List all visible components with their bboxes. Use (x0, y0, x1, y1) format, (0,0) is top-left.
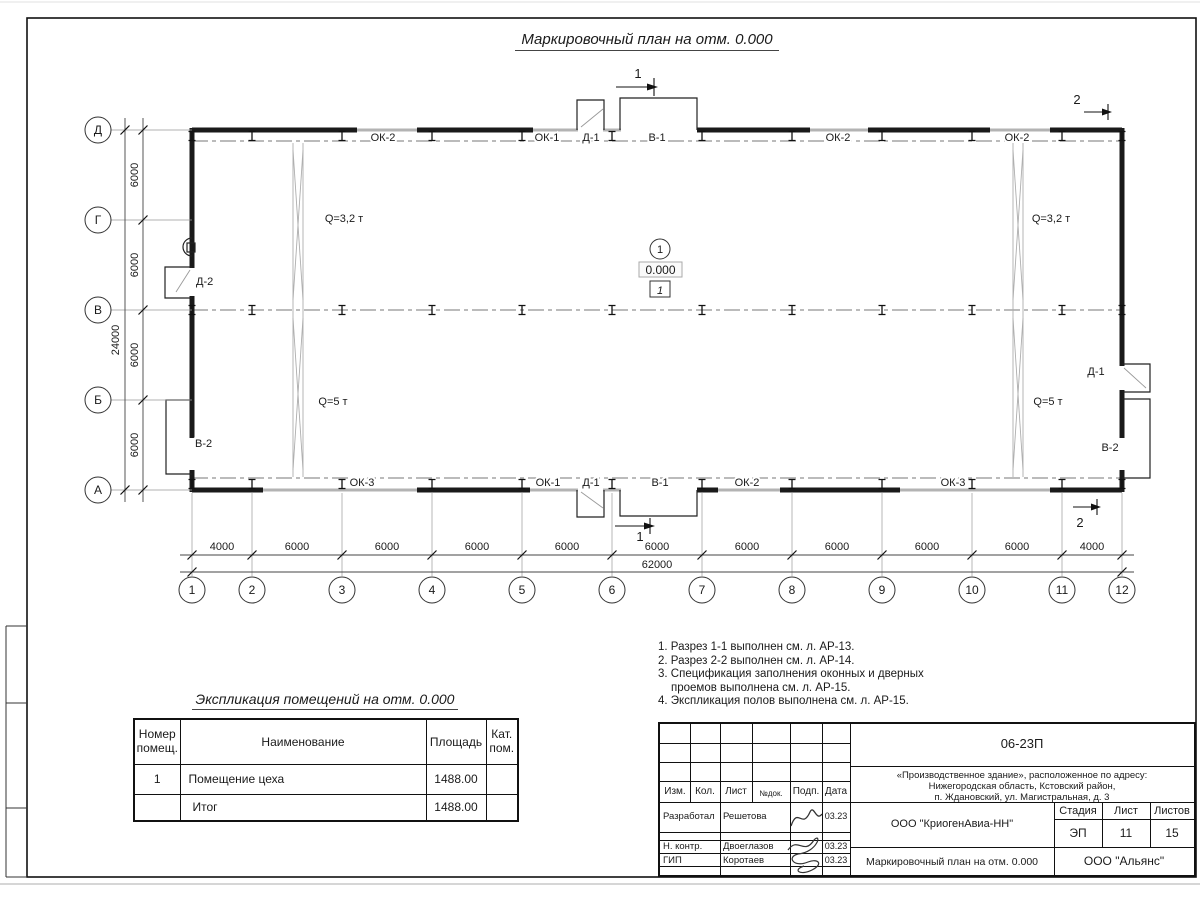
door-mark-label: Д-1 (1087, 366, 1104, 378)
dim-label: 6000 (1005, 541, 1029, 553)
explication-title-text: Экспликация помещений на отм. 0.000 (192, 691, 459, 710)
dim-label: 6000 (645, 541, 669, 553)
explication-header-row: Номер помещ. Наименование Площадь Кат. п… (134, 719, 518, 764)
axis-bubble-label: 5 (519, 583, 526, 597)
explication-table: Номер помещ. Наименование Площадь Кат. п… (133, 718, 519, 822)
table-row: Итог 1488.00 (134, 794, 518, 821)
axis-bubble-label: 6 (609, 583, 616, 597)
dim-label: 6000 (129, 163, 141, 187)
note-line: 3. Спецификация заполнения оконных и две… (658, 668, 978, 682)
tb-address-line1: «Производственное здание», расположенное… (850, 770, 1194, 781)
cell-total-area: 1488.00 (426, 794, 486, 821)
note-line: 2. Разрез 2-2 выполнен см. л. АР-14. (658, 655, 978, 669)
tb-name-gip: Коротаев (723, 855, 764, 866)
cell-total-label: Итог (180, 794, 426, 821)
axis-bubble-label: А (94, 483, 102, 497)
axis-bubble-label: 12 (1115, 583, 1129, 597)
window-mark-label: ОК-1 (536, 477, 561, 489)
window-mark-label: ОК-2 (826, 132, 851, 144)
tb-name-control: Двоеглазов (723, 841, 774, 852)
title-block: Изм. Кол. Лист №док. Подп. Дата Разработ… (658, 722, 1196, 877)
axis-bubble-label: В (94, 303, 102, 317)
window-mark-label: ОК-1 (535, 132, 560, 144)
dim-total-label: 24000 (110, 325, 122, 356)
door-leaf-lines (176, 109, 1146, 508)
signature-developer (788, 804, 824, 832)
col-header-name: Наименование (180, 719, 426, 764)
axis-bubble-label: 2 (249, 583, 256, 597)
tb-sheets-value: 15 (1150, 828, 1194, 839)
axis-bubble-label: 4 (429, 583, 436, 597)
col-header-area: Площадь (426, 719, 486, 764)
dim-label: 6000 (915, 541, 939, 553)
door-mark-label: Д-2 (196, 276, 213, 288)
level-mark: 1 0.000 1 (639, 239, 682, 297)
row-axis-bubbles: Д Г В Б А (85, 117, 111, 503)
axis-bubble-label: 8 (789, 583, 796, 597)
room-axis-number: 1 (657, 244, 663, 256)
axis-bubble-label: 1 (189, 583, 196, 597)
cell-room-name: Помещение цеха (180, 764, 426, 794)
tb-sheet-value: 11 (1102, 828, 1150, 839)
section-number: 1 (634, 66, 641, 81)
tb-drawing-title: Маркировочный план на отм. 0.000 (850, 857, 1054, 868)
axis-bubble-label: 9 (879, 583, 886, 597)
tb-address-line2: Нижегородская область, Кстовский район, (850, 781, 1194, 792)
window-mark-label: ОК-3 (350, 477, 375, 489)
dim-label: 4000 (1080, 541, 1104, 553)
tb-company: ООО "КриогенАвиа-НН" (850, 819, 1054, 830)
window-mark-label: ОК-3 (941, 477, 966, 489)
section-number: 2 (1073, 92, 1080, 107)
axis-bubble-label: 10 (965, 583, 979, 597)
note-line: проемов выполнена см. л. АР-15. (658, 682, 978, 696)
axis-bubble-label: Д (94, 123, 102, 137)
gate-mark-label: В-1 (648, 132, 665, 144)
gate-mark-label: В-2 (1101, 442, 1118, 454)
table-row: 1 Помещение цеха 1488.00 (134, 764, 518, 794)
tb-col-kol: Кол. (690, 786, 720, 797)
tb-doc-number: 06-23П (850, 738, 1194, 749)
dim-label: 6000 (129, 433, 141, 457)
tb-col-data: Дата (822, 786, 850, 797)
note-line: 1. Разрез 1-1 выполнен см. л. АР-13. (658, 641, 978, 655)
note-line: 4. Экспликация полов выполнена см. л. АР… (658, 695, 978, 709)
window-mark-label: ОК-2 (1005, 132, 1030, 144)
column-axis-bubbles: 1 2 3 4 5 6 7 8 9 10 11 12 (179, 577, 1135, 603)
side-opening-labels: Д-2 В-2 Д-1 В-2 (195, 276, 1119, 454)
vestibule-outlines (165, 98, 1150, 517)
bottom-wall-mark-labels: ОК-3 ОК-1 Д-1 В-1 ОК-2 ОК-3 (350, 477, 966, 489)
tb-stage-label: Стадия (1054, 806, 1102, 817)
tb-col-izm: Изм. (660, 786, 690, 797)
bottom-dimension-labels: 4000 6000 6000 6000 6000 6000 6000 6000 … (210, 541, 1104, 571)
axis-bubble-label: 7 (699, 583, 706, 597)
drawing-sheet: { "sheet": { "plan_title": "Маркировочны… (0, 0, 1200, 900)
dim-label: 6000 (129, 343, 141, 367)
tb-sheets-label: Листов (1150, 806, 1194, 817)
door-mark-label: Д-1 (582, 132, 599, 144)
col-header-room-number: Номер помещ. (134, 719, 180, 764)
dim-label: 6000 (129, 253, 141, 277)
extension-lines-left (111, 130, 192, 490)
dim-total-label: 62000 (642, 559, 673, 571)
tb-stage-value: ЭП (1054, 828, 1102, 839)
dim-label: 6000 (465, 541, 489, 553)
cell-room-number: 1 (134, 764, 180, 794)
dimension-lines (125, 118, 1134, 572)
top-wall-mark-labels: ОК-2 ОК-1 Д-1 В-1 ОК-2 ОК-2 (371, 132, 1030, 144)
dim-label: 6000 (555, 541, 579, 553)
axis-datum-lines (192, 141, 1122, 478)
cell-room-category (486, 764, 518, 794)
explication-title: Экспликация помещений на отм. 0.000 (133, 691, 517, 707)
dim-label: 6000 (285, 541, 309, 553)
axis-bubble-label: 3 (339, 583, 346, 597)
section-mark-lines (615, 78, 1108, 534)
cell-room-number (134, 794, 180, 821)
crane-capacity-label: Q=3,2 т (1032, 213, 1070, 225)
col-header-category: Кат. пом. (486, 719, 518, 764)
dimension-ticks (121, 126, 1127, 577)
gate-mark-label: В-1 (651, 477, 668, 489)
tb-role-developer: Разработал (663, 811, 715, 822)
left-margin-stamp (6, 626, 27, 877)
section-mark-arrowheads (644, 84, 1112, 530)
window-mark-label: ОК-2 (735, 477, 760, 489)
tb-col-list: Лист (720, 786, 752, 797)
dim-label: 4000 (210, 541, 234, 553)
section-number: 2 (1076, 515, 1083, 530)
tb-address-line3: п. Ждановский, ул. Магистральная, д. 3 (850, 792, 1194, 803)
window-mark-label: ОК-2 (371, 132, 396, 144)
gate-mark-label: В-2 (195, 438, 212, 450)
page-title-text: Маркировочный план на отм. 0.000 (515, 31, 778, 51)
signature-control-gip (784, 834, 828, 876)
dim-label: 6000 (735, 541, 759, 553)
axis-bubble-label: Б (94, 393, 102, 407)
tb-name-developer: Решетова (723, 811, 767, 822)
general-notes: 1. Разрез 1-1 выполнен см. л. АР-13. 2. … (658, 641, 978, 709)
tb-role-control: Н. контр. (663, 841, 702, 852)
tb-role-gip: ГИП (663, 855, 682, 866)
cell-room-category (486, 794, 518, 821)
elevation-value: 0.000 (645, 263, 675, 277)
crane-capacity-label: Q=3,2 т (325, 213, 363, 225)
tb-col-docnum: №док. (752, 788, 790, 799)
cell-room-area: 1488.00 (426, 764, 486, 794)
door-mark-label: Д-1 (582, 477, 599, 489)
tb-col-podp: Подп. (790, 786, 822, 797)
dim-label: 6000 (375, 541, 399, 553)
crane-capacity-label: Q=5 т (318, 396, 347, 408)
tb-date-developer: 03.23 (822, 811, 850, 822)
dim-label: 6000 (825, 541, 849, 553)
tb-sheet-label: Лист (1102, 806, 1150, 817)
axis-bubble-label: Г (95, 213, 102, 227)
room-number: 1 (657, 285, 663, 297)
section-number: 1 (636, 529, 643, 544)
tb-contractor: ООО "Альянс" (1054, 856, 1194, 867)
crane-capacity-labels: Q=3,2 т Q=3,2 т Q=5 т Q=5 т (318, 213, 1070, 408)
axis-bubble-label: 11 (1056, 583, 1069, 597)
page-title: Маркировочный план на отм. 0.000 (447, 31, 847, 48)
crane-capacity-label: Q=5 т (1033, 396, 1062, 408)
